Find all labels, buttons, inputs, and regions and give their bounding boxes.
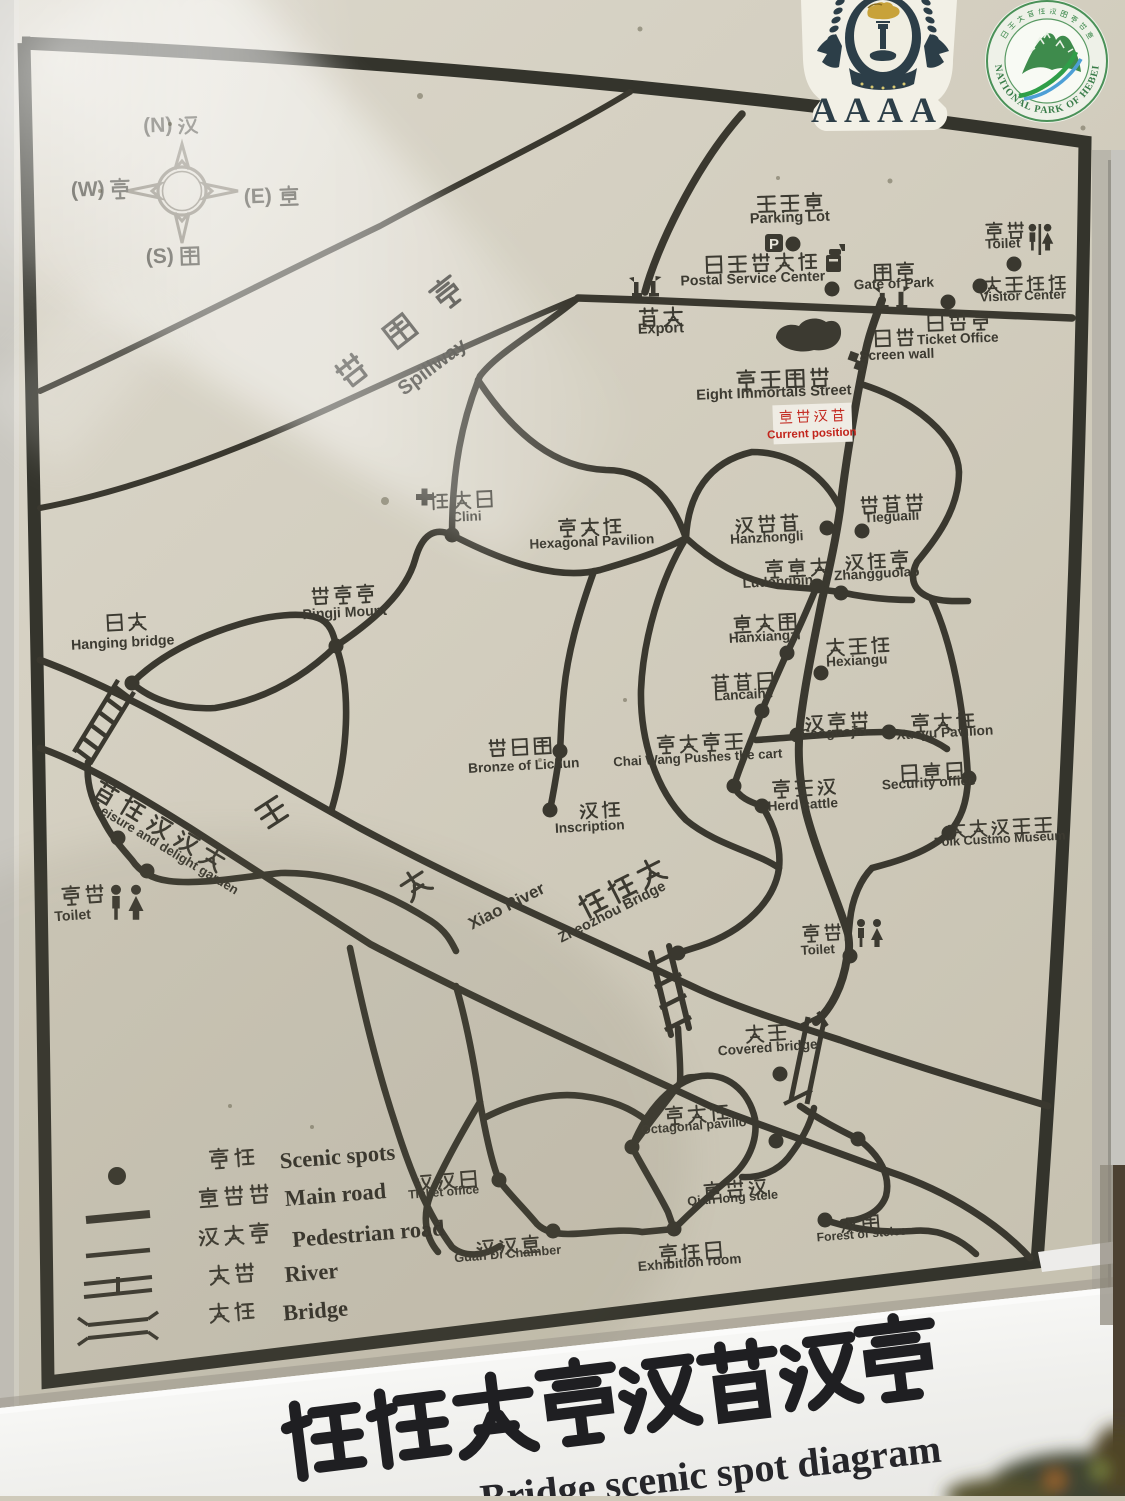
- svg-text:AAAA: AAAA: [811, 90, 943, 130]
- svg-text:Gate of Park: Gate of Park: [853, 275, 934, 293]
- svg-text:Lancaihe: Lancaihe: [714, 685, 774, 703]
- svg-text:Toilet: Toilet: [800, 941, 835, 958]
- svg-text:Export: Export: [638, 320, 685, 338]
- svg-text:Tieguaili: Tieguaili: [864, 508, 920, 526]
- svg-text:Toilet: Toilet: [985, 235, 1021, 251]
- svg-text:Parking Lot: Parking Lot: [750, 209, 831, 228]
- svg-text:Visitor Center: Visitor Center: [980, 287, 1067, 305]
- svg-text:Screen wall: Screen wall: [859, 346, 934, 364]
- svg-text:Ticket Office: Ticket Office: [917, 330, 999, 348]
- svg-text:P: P: [769, 236, 779, 253]
- svg-text:Hexiangu: Hexiangu: [826, 651, 888, 669]
